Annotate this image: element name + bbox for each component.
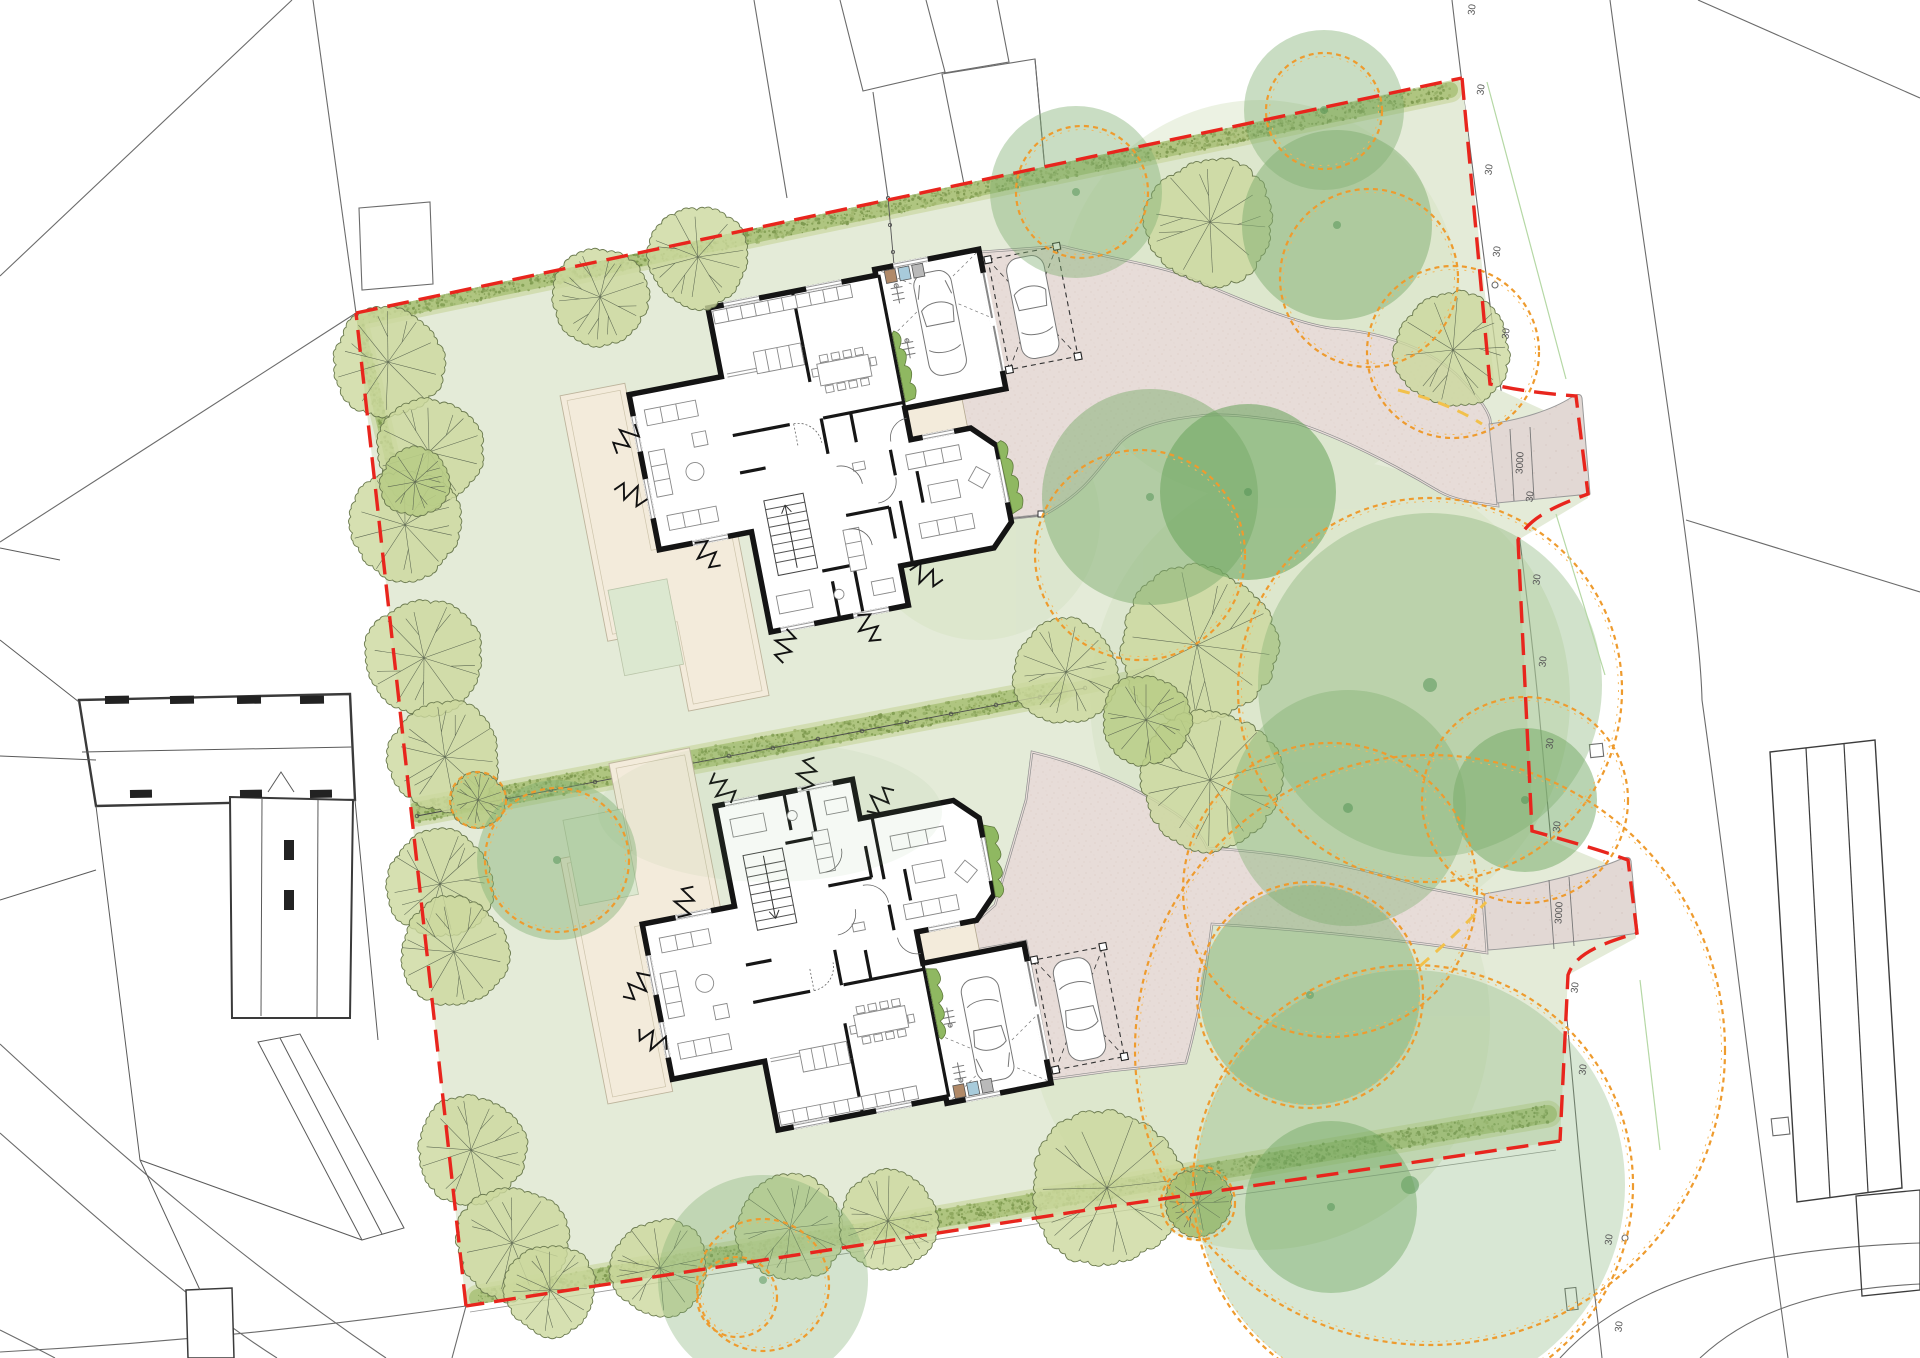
svg-text:30: 30: [1551, 820, 1563, 833]
svg-text:30: 30: [1491, 245, 1503, 258]
svg-text:30: 30: [1531, 573, 1543, 586]
svg-text:3000: 3000: [1514, 451, 1526, 474]
svg-text:3000: 3000: [1553, 901, 1565, 924]
svg-text:30: 30: [1466, 3, 1478, 16]
svg-text:30: 30: [1500, 327, 1512, 340]
svg-text:30: 30: [1537, 655, 1549, 668]
svg-text:30: 30: [1577, 1063, 1589, 1076]
svg-text:30: 30: [1613, 1320, 1625, 1333]
svg-text:30: 30: [1544, 737, 1556, 750]
svg-text:30: 30: [1603, 1233, 1615, 1246]
svg-text:30: 30: [1524, 490, 1536, 503]
svg-text:30: 30: [1569, 981, 1581, 994]
svg-text:30: 30: [1483, 163, 1495, 176]
svg-text:30: 30: [1475, 83, 1487, 96]
